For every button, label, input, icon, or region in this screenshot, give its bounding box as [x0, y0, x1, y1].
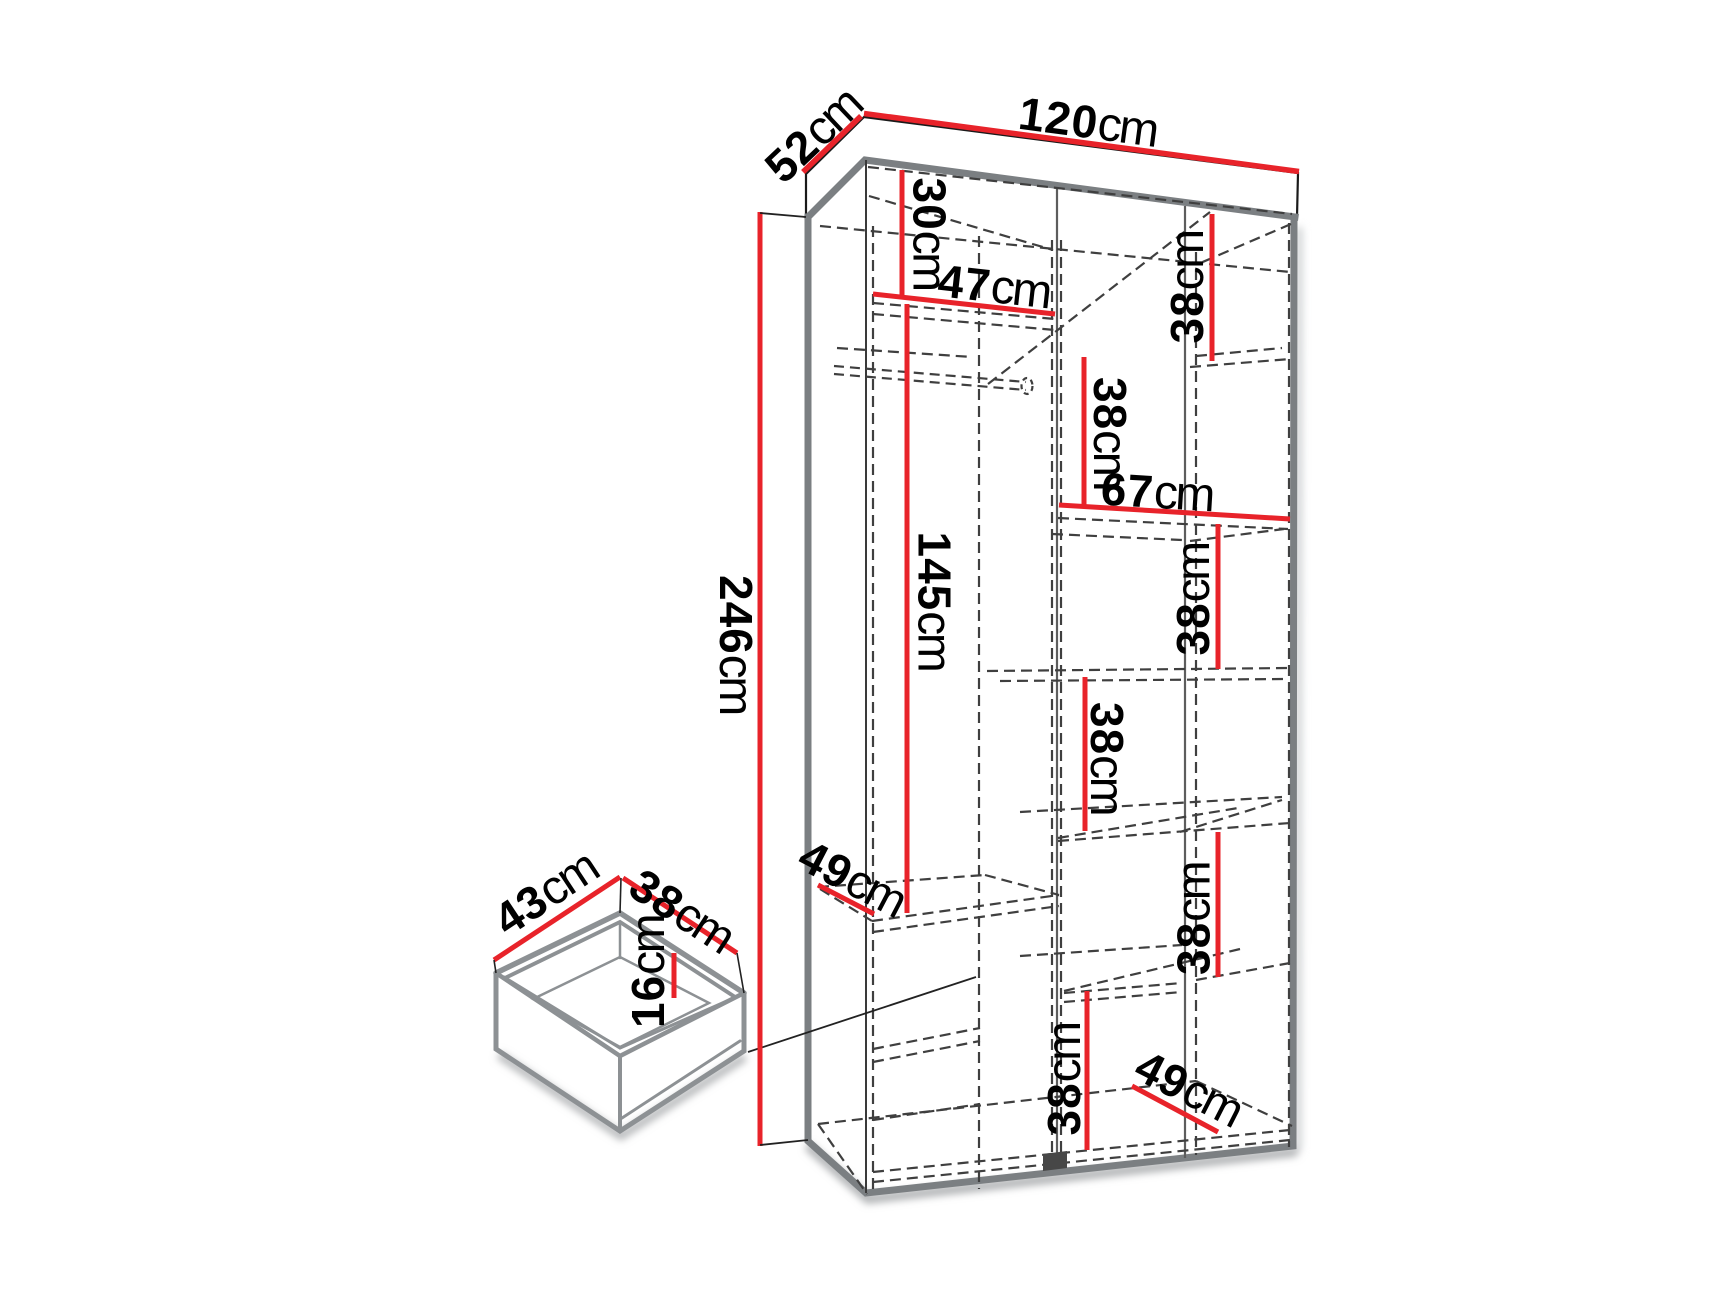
svg-text:38cm: 38cm [1167, 543, 1220, 655]
svg-text:38cm: 38cm [1080, 702, 1133, 814]
svg-text:145cm: 145cm [908, 532, 961, 671]
svg-text:246cm: 246cm [709, 575, 762, 714]
svg-text:16cm: 16cm [622, 916, 675, 1028]
svg-text:38cm: 38cm [1168, 863, 1221, 975]
svg-text:38cm: 38cm [1038, 1023, 1091, 1135]
svg-text:67cm: 67cm [1099, 463, 1214, 523]
svg-text:38cm: 38cm [1161, 231, 1214, 343]
